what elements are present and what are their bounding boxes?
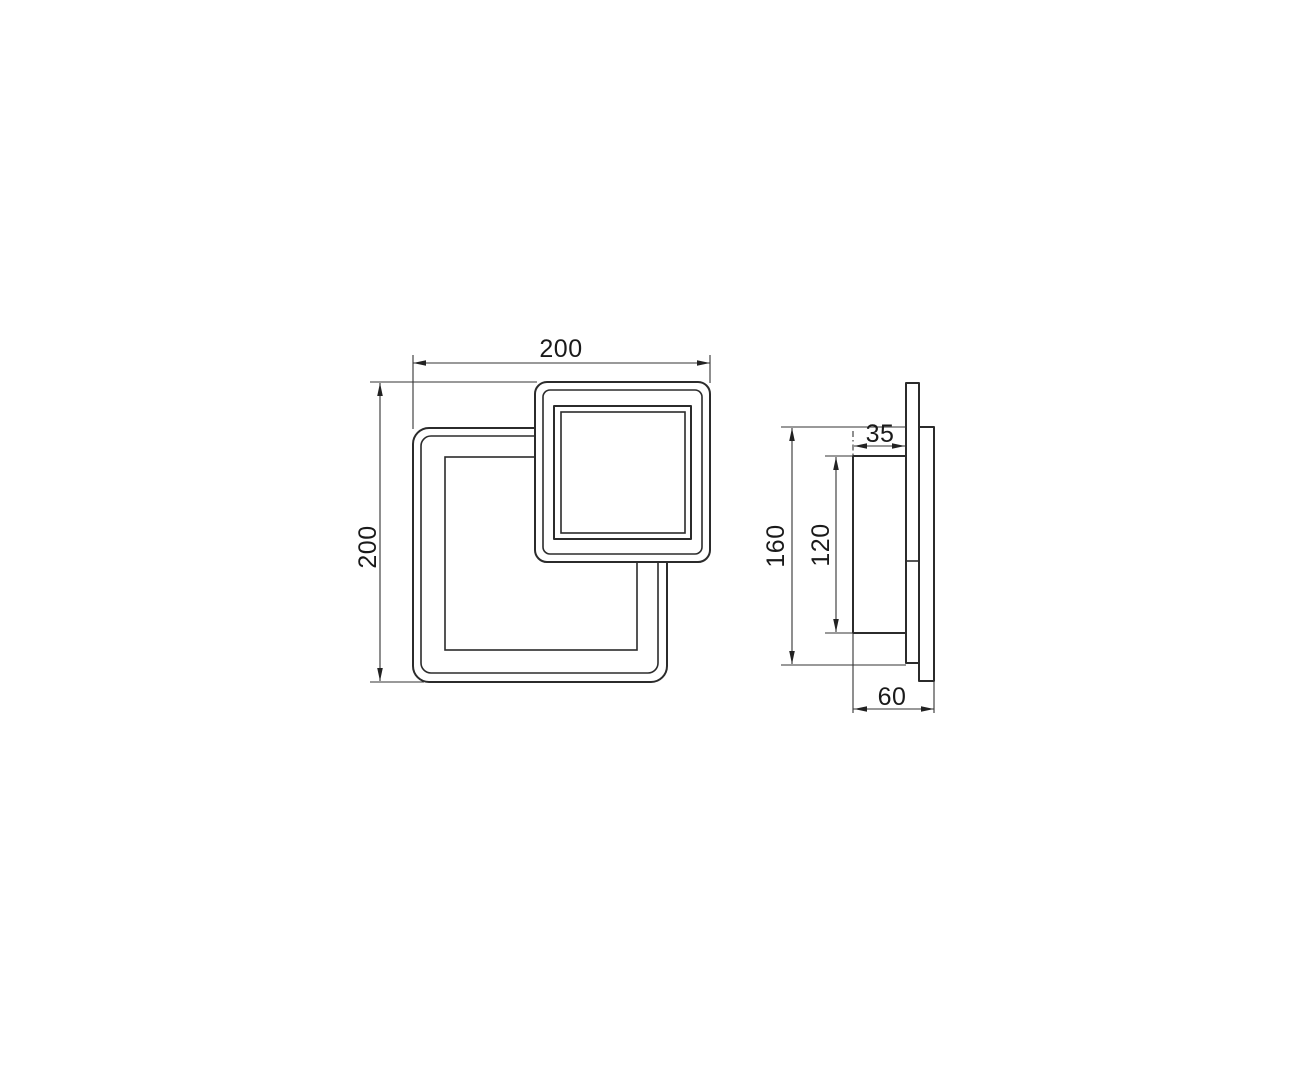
arrowhead: [789, 428, 795, 441]
dim-label-side-panel-height: 120: [807, 523, 835, 566]
small-square-panel: [535, 382, 710, 562]
arrowhead: [413, 360, 426, 366]
arrowhead: [697, 360, 710, 366]
dim-label-front-width: 200: [539, 335, 582, 363]
lamp-body-edge: [853, 456, 906, 633]
arrowhead: [377, 668, 383, 681]
side-view: 160 120 35: [762, 383, 934, 713]
dim-label-front-height: 200: [354, 525, 382, 568]
dim-label-side-overall-height: 160: [762, 524, 790, 567]
arrowhead: [833, 457, 839, 470]
mounting-plate-edge: [906, 383, 919, 663]
technical-drawing: 200 200: [0, 0, 1305, 1067]
drawing-canvas: 200 200: [0, 0, 1305, 1067]
arrowhead: [789, 651, 795, 664]
front-view: 200 200: [354, 335, 710, 682]
arrowhead: [921, 706, 934, 712]
back-plate-edge: [919, 427, 934, 681]
dimension-side-panel-depth: 35: [853, 420, 905, 459]
arrowhead: [854, 706, 867, 712]
dim-label-side-panel-depth: 35: [866, 420, 895, 448]
dim-label-side-total-depth: 60: [878, 683, 907, 711]
dimension-side-panel-height: 120: [807, 456, 853, 633]
arrowhead: [833, 619, 839, 632]
arrowhead: [377, 383, 383, 396]
